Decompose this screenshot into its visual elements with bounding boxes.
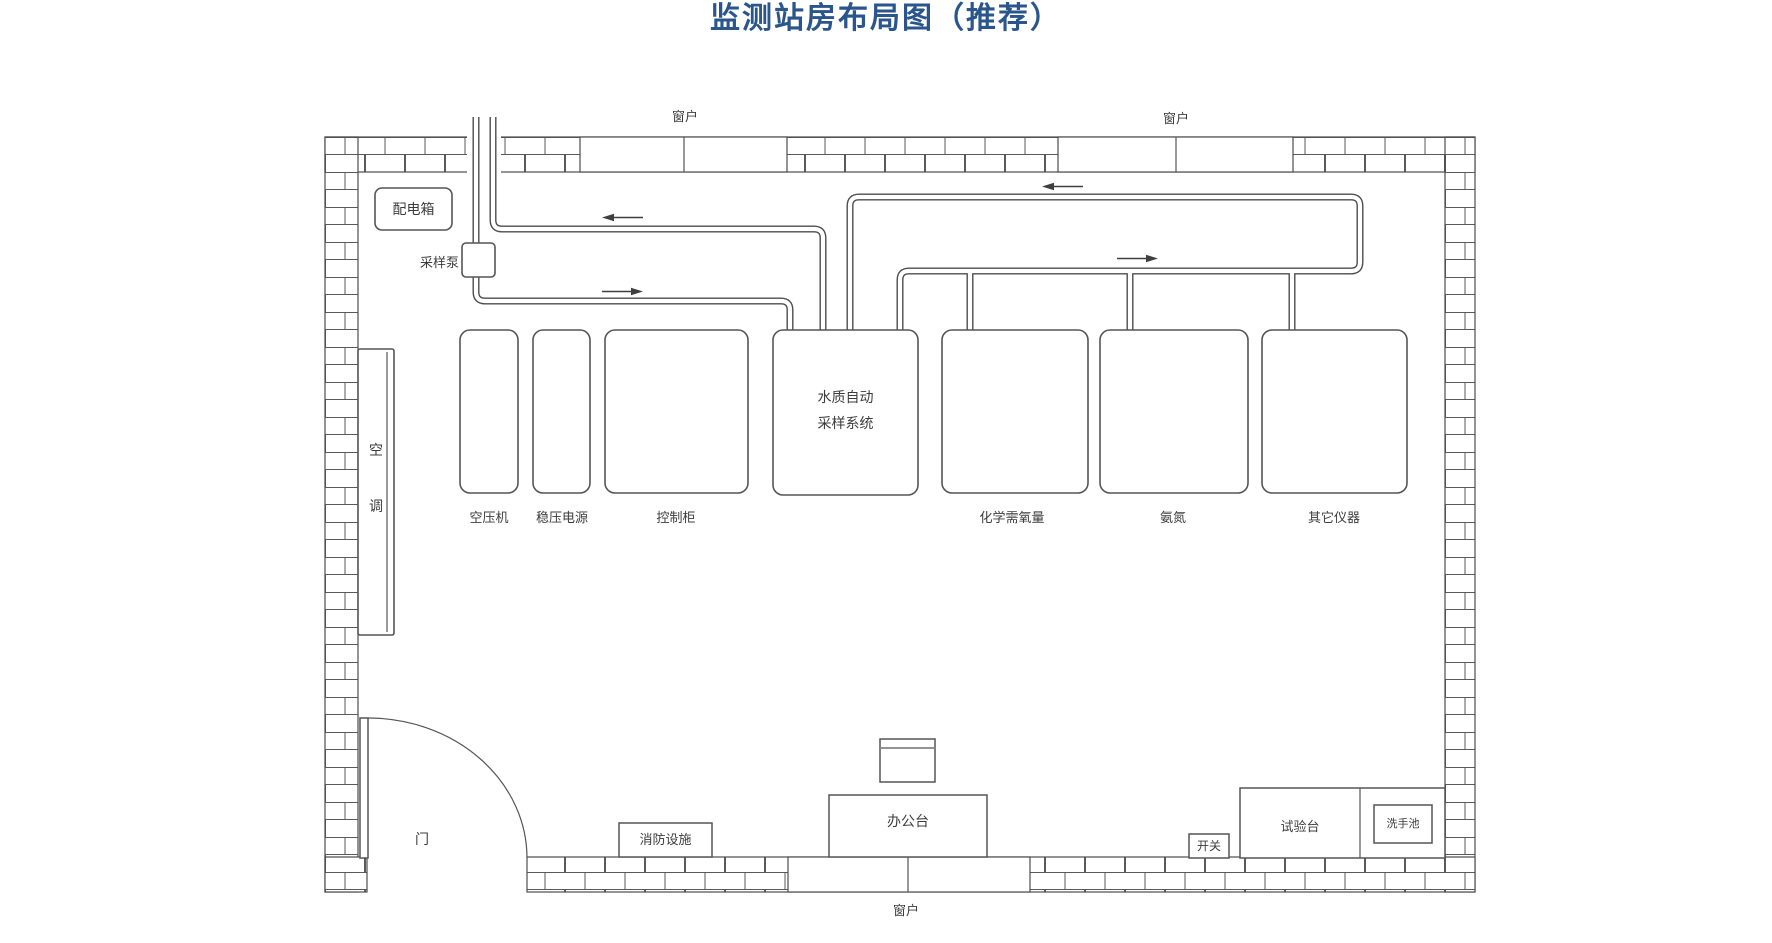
- control-cabinet-box: [605, 330, 748, 493]
- pipe-loop-outer: [850, 197, 1360, 331]
- wall-left: [325, 137, 358, 892]
- door-swing-arc: [368, 718, 527, 858]
- other-instruments-label: 其它仪器: [1294, 510, 1374, 526]
- air-conditioner-label: 空 调: [365, 422, 387, 534]
- window-bottom-label: 窗户: [856, 903, 956, 919]
- arrow-loop-top-head-left: [1042, 183, 1054, 190]
- ammonia-analyzer-label: 氨氮: [1133, 510, 1213, 526]
- door-leaf: [360, 718, 368, 858]
- office-desk-label: 办公台: [829, 813, 987, 831]
- other-instruments-box: [1262, 330, 1407, 493]
- window-top-left-label: 窗户: [635, 109, 735, 125]
- arrow-supply-head-right: [631, 288, 643, 295]
- air-compressor-label: 空压机: [449, 510, 529, 526]
- wall-right: [1445, 137, 1475, 892]
- pipe-loop-inner: [850, 197, 1360, 333]
- test-bench-label: 试验台: [1250, 819, 1350, 835]
- floor-plan-page: 监测站房布局图（推荐） 窗户 窗户 窗户 配电箱 采样泵 空 调 空压机 稳压电…: [0, 0, 1772, 943]
- air-compressor-box: [460, 330, 518, 493]
- arrow-loop-bottom-head-right: [1146, 255, 1158, 262]
- fire-equipment-label: 消防设施: [619, 832, 712, 848]
- wall-bottom-left-stub: [325, 857, 367, 892]
- sink-label: 洗手池: [1374, 818, 1432, 832]
- ammonia-analyzer-box: [1100, 330, 1248, 493]
- cod-analyzer-label: 化学需氧量: [972, 510, 1052, 526]
- chair-box: [880, 739, 935, 782]
- sampling-pump-box: [462, 243, 495, 277]
- furniture-shapes: [619, 739, 1445, 858]
- door-label: 门: [400, 831, 444, 849]
- control-cabinet-label: 控制柜: [636, 510, 716, 526]
- voltage-stabilizer-box: [533, 330, 590, 493]
- sampling-pump-label: 采样泵: [403, 255, 459, 271]
- cod-analyzer-box: [942, 330, 1088, 493]
- switch-label: 开关: [1189, 839, 1229, 854]
- distribution-box-label: 配电箱: [375, 201, 452, 219]
- voltage-stabilizer-label: 稳压电源: [521, 510, 603, 526]
- arrow-return-head-left: [602, 214, 614, 221]
- water-sampling-system-label: 水质自动 采样系统: [800, 384, 891, 436]
- floor-plan-drawing: [0, 0, 1772, 943]
- page-title: 监测站房布局图（推荐）: [0, 0, 1772, 38]
- window-top-right-label: 窗户: [1126, 111, 1226, 127]
- window-bottom: [788, 857, 1030, 892]
